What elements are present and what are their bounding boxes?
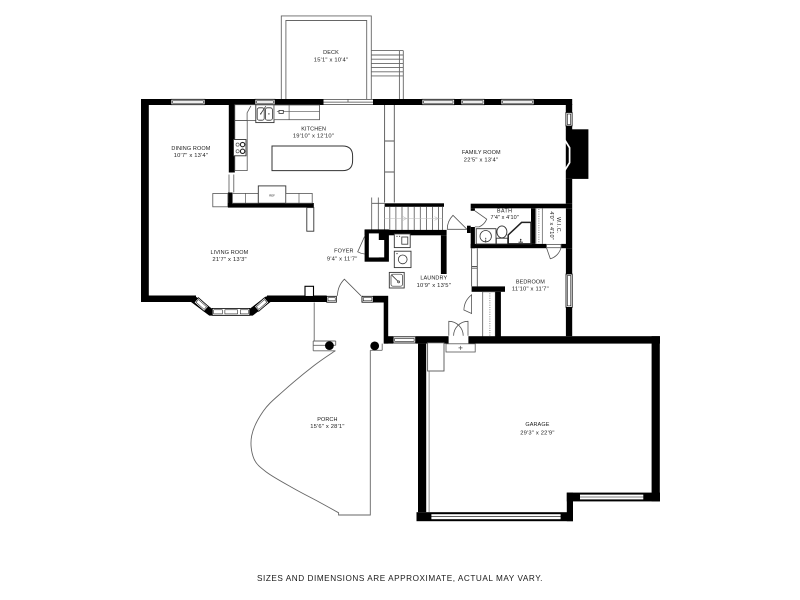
- svg-text:LIVING ROOM: LIVING ROOM: [211, 250, 249, 256]
- svg-text:BATH: BATH: [497, 208, 512, 214]
- svg-text:10'7" x 13'4": 10'7" x 13'4": [174, 153, 208, 159]
- svg-text:KITCHEN: KITCHEN: [301, 127, 326, 133]
- svg-text:11'10" x 11'7": 11'10" x 11'7": [512, 286, 549, 292]
- svg-text:DINING ROOM: DINING ROOM: [171, 146, 210, 152]
- svg-text:15'6" x 28'1": 15'6" x 28'1": [310, 424, 344, 430]
- svg-text:FAMILY ROOM: FAMILY ROOM: [462, 150, 501, 156]
- svg-text:22'5" x 13'4": 22'5" x 13'4": [464, 158, 498, 164]
- svg-text:10'9" x 13'5": 10'9" x 13'5": [417, 283, 451, 289]
- svg-text:GARAGE: GARAGE: [525, 422, 549, 428]
- svg-text:REF: REF: [269, 194, 275, 198]
- svg-text:29'3" x 22'9": 29'3" x 22'9": [520, 430, 554, 436]
- svg-text:9'4" x 11'7": 9'4" x 11'7": [327, 256, 358, 262]
- svg-text:21'7" x 13'3": 21'7" x 13'3": [212, 257, 246, 263]
- svg-text:BEDROOM: BEDROOM: [516, 279, 545, 285]
- svg-text:SIZES AND DIMENSIONS ARE APPRO: SIZES AND DIMENSIONS ARE APPROXIMATE, AC…: [257, 574, 543, 583]
- svg-text:LAUNDRY: LAUNDRY: [420, 276, 447, 282]
- svg-text:FOYER: FOYER: [334, 249, 353, 255]
- svg-text:7'4" x 4'10": 7'4" x 4'10": [491, 215, 519, 221]
- svg-text:PORCH: PORCH: [317, 417, 337, 423]
- svg-text:DECK: DECK: [323, 50, 339, 56]
- svg-text:19'10" x 12'10": 19'10" x 12'10": [293, 134, 334, 140]
- svg-text:4'0" x 4'10": 4'0" x 4'10": [548, 211, 554, 239]
- svg-text:15'1" x 10'4": 15'1" x 10'4": [314, 57, 348, 63]
- svg-text:W.I.C.: W.I.C.: [555, 217, 561, 234]
